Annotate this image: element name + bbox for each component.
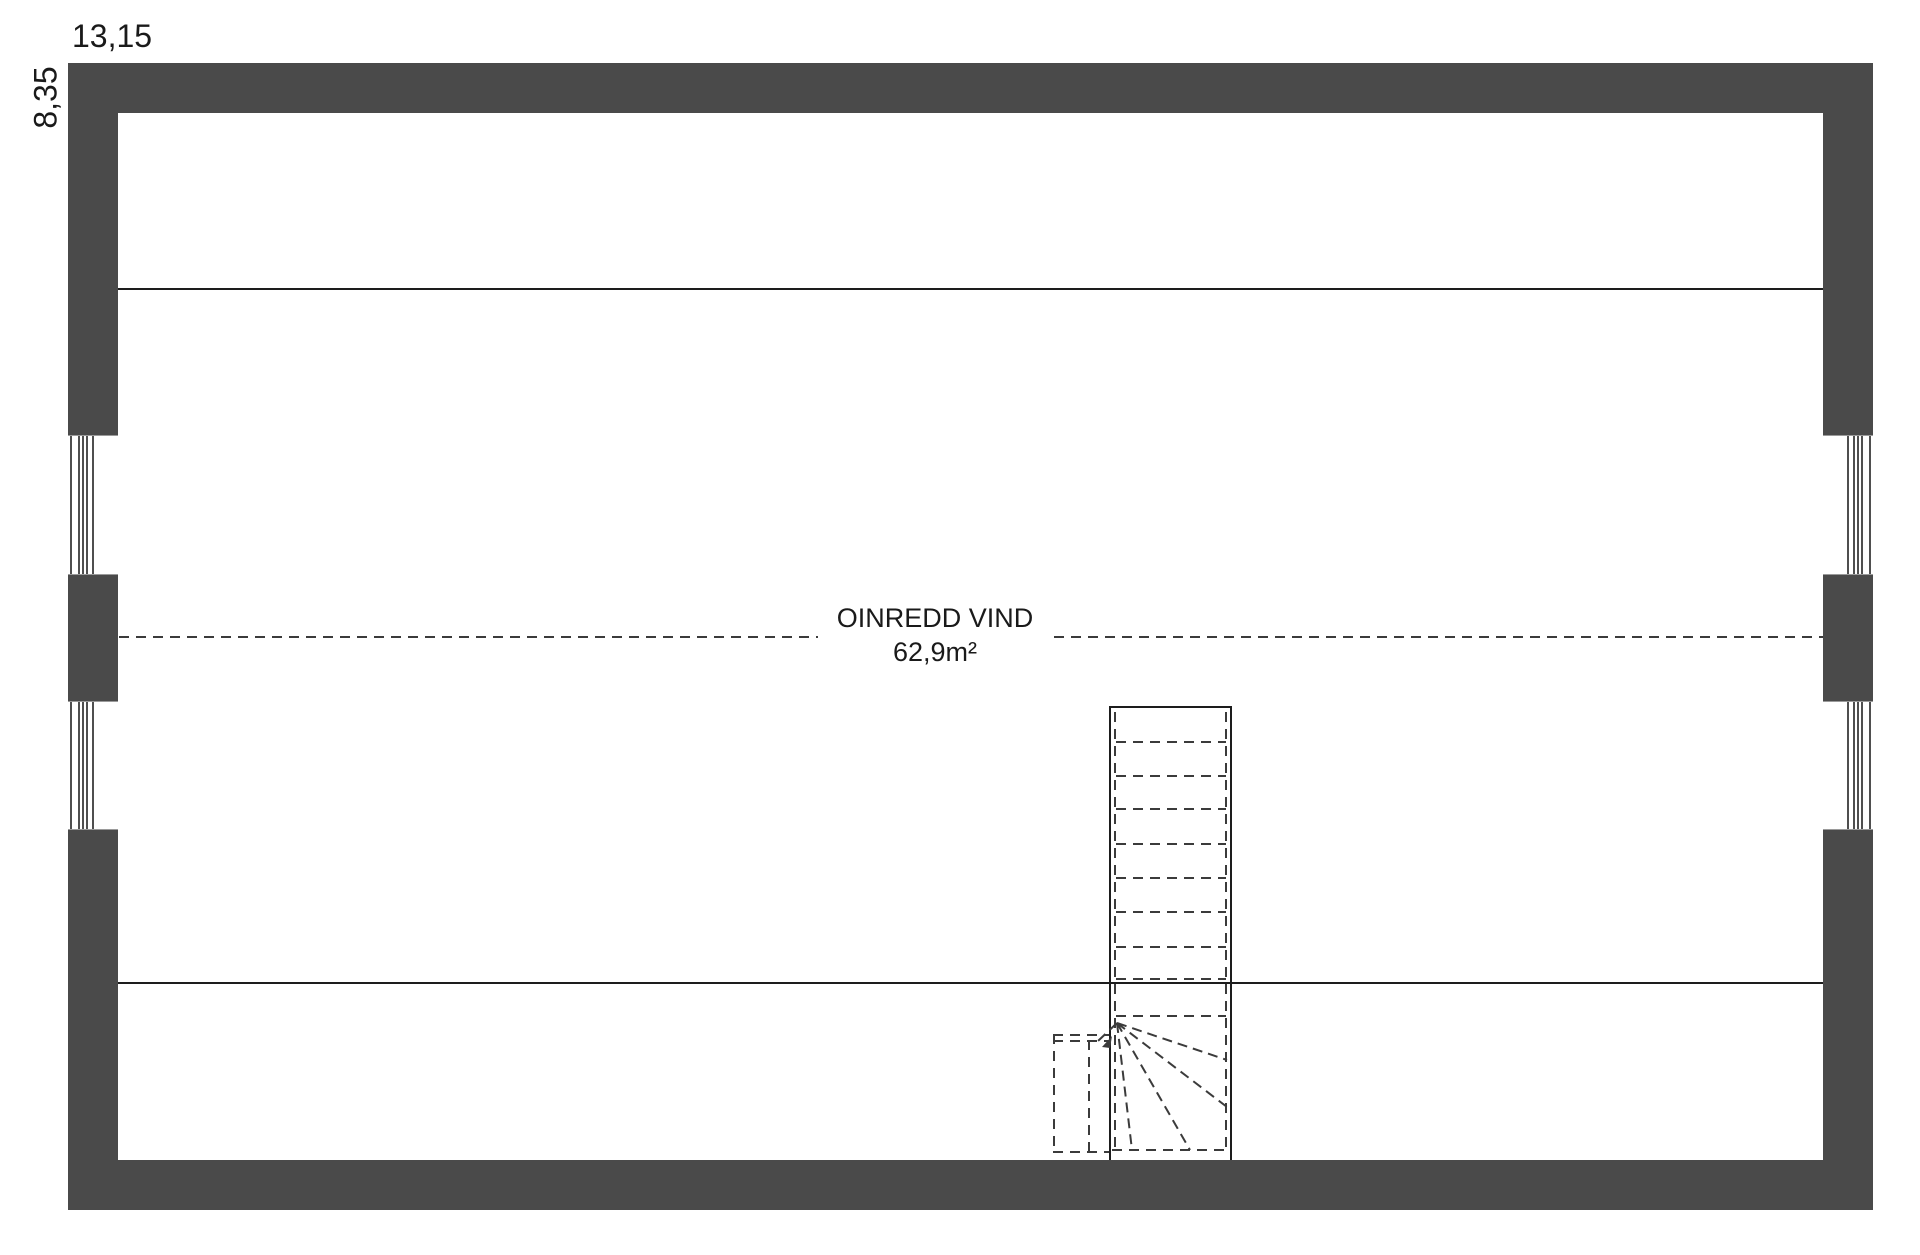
window-frame-line bbox=[82, 436, 84, 574]
window-left-lower bbox=[68, 701, 118, 830]
window-right-upper bbox=[1823, 435, 1873, 575]
window-frame-line bbox=[1853, 436, 1855, 574]
stair-tread bbox=[1116, 808, 1226, 810]
floor-plan-canvas: 13,15 8,35 OINREDD VIN bbox=[0, 0, 1920, 1255]
landing-inner-line bbox=[1088, 1040, 1090, 1152]
window-frame-line bbox=[92, 702, 94, 829]
window-frame-line bbox=[1853, 702, 1855, 829]
window-frame-line bbox=[86, 436, 88, 574]
stair-tread bbox=[1116, 877, 1226, 879]
stair-direction-arrow bbox=[1102, 1036, 1112, 1048]
stair-tread bbox=[1116, 911, 1226, 913]
landing-handrail bbox=[1053, 1040, 1109, 1042]
window-frame-line bbox=[1857, 702, 1859, 829]
window-left-upper bbox=[68, 435, 118, 575]
room-name: OINREDD VIND bbox=[818, 601, 1052, 635]
window-frame-line bbox=[70, 702, 72, 829]
stair-tread bbox=[1116, 775, 1226, 777]
headroom-line-top bbox=[118, 288, 1823, 290]
window-right-lower bbox=[1823, 701, 1873, 830]
window-frame-line bbox=[92, 436, 94, 574]
room-area: 62,9m² bbox=[818, 635, 1052, 669]
dimension-width-label: 13,15 bbox=[72, 18, 152, 55]
stair-tread bbox=[1116, 843, 1226, 845]
window-frame-line bbox=[1869, 436, 1871, 574]
wall-left bbox=[68, 63, 118, 1210]
window-frame-line bbox=[70, 436, 72, 574]
window-frame-line bbox=[78, 436, 80, 574]
wall-right bbox=[1823, 63, 1873, 1210]
headroom-line-bottom bbox=[118, 982, 1823, 984]
window-frame-line bbox=[1847, 436, 1849, 574]
landing-top-edge bbox=[1053, 1034, 1109, 1036]
window-frame-line bbox=[1847, 702, 1849, 829]
stair-wall-top bbox=[1109, 706, 1232, 708]
room-label: OINREDD VIND 62,9m² bbox=[818, 601, 1052, 669]
wall-top bbox=[68, 63, 1873, 113]
window-frame-line bbox=[78, 702, 80, 829]
window-frame-line bbox=[1861, 436, 1863, 574]
wall-bottom bbox=[68, 1160, 1873, 1210]
stair-tread bbox=[1116, 978, 1226, 980]
window-frame-line bbox=[86, 702, 88, 829]
dimension-height-label: 8,35 bbox=[28, 53, 65, 143]
stair-winder-fan bbox=[1080, 1005, 1240, 1155]
landing-left-edge bbox=[1053, 1034, 1055, 1152]
landing-bottom-edge bbox=[1053, 1151, 1109, 1153]
stair-tread bbox=[1116, 741, 1226, 743]
stair-tread bbox=[1116, 946, 1226, 948]
window-frame-line bbox=[1857, 436, 1859, 574]
window-frame-line bbox=[82, 702, 84, 829]
window-frame-line bbox=[1869, 702, 1871, 829]
window-frame-line bbox=[1861, 702, 1863, 829]
